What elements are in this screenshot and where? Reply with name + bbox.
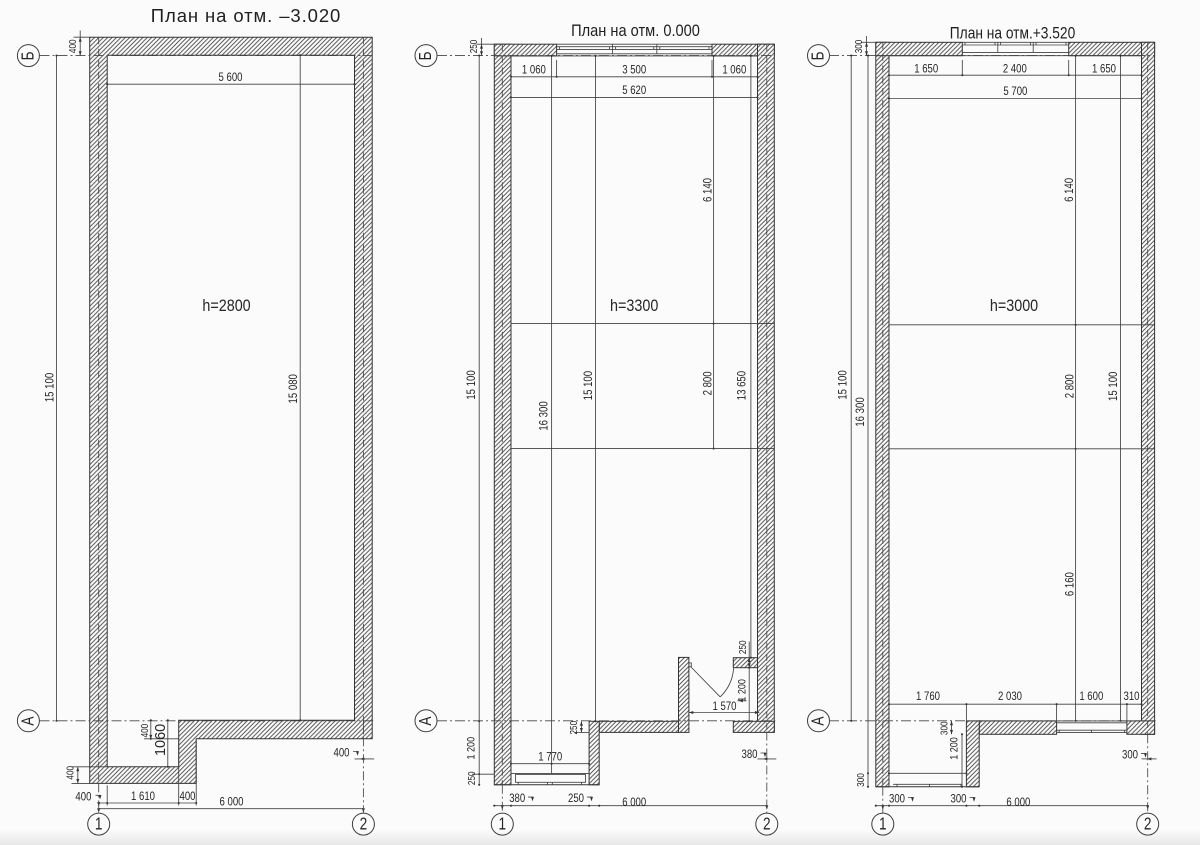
svg-text:Б: Б [19,51,38,60]
svg-text:300: 300 [951,793,967,806]
svg-text:16 300: 16 300 [854,397,867,426]
svg-text:400: 400 [139,724,150,738]
svg-text:380: 380 [742,748,758,761]
svg-text:1 770: 1 770 [538,751,562,764]
svg-text:5 700: 5 700 [1003,85,1027,98]
svg-text:16 300: 16 300 [537,401,550,430]
svg-text:6 160: 6 160 [1064,572,1077,596]
svg-text:1 200: 1 200 [737,679,749,702]
svg-text:1 650: 1 650 [1092,63,1116,76]
svg-text:15 100: 15 100 [836,370,849,399]
svg-text:План на отм.+3.520: План на отм.+3.520 [950,24,1075,43]
svg-text:6 140: 6 140 [1063,178,1076,202]
svg-text:15 100: 15 100 [43,373,56,402]
svg-text:А: А [809,716,828,726]
svg-text:250: 250 [568,721,579,735]
svg-text:1: 1 [95,815,103,834]
svg-text:250: 250 [737,641,748,655]
svg-text:300: 300 [855,773,866,787]
svg-text:6 140: 6 140 [701,178,714,202]
svg-text:300: 300 [1122,749,1138,762]
svg-text:2 030: 2 030 [998,690,1022,703]
svg-text:300: 300 [938,722,949,736]
svg-text:5 620: 5 620 [622,84,646,97]
svg-text:2 400: 2 400 [1003,63,1027,76]
svg-text:380: 380 [509,792,525,805]
svg-text:h=2800: h=2800 [202,297,251,315]
svg-text:1 060: 1 060 [722,63,746,76]
svg-text:1 600: 1 600 [1079,690,1103,703]
svg-text:3 500: 3 500 [622,63,646,76]
svg-text:1: 1 [499,815,507,834]
svg-text:План на отм. –3.020: План на отм. –3.020 [151,5,341,26]
svg-text:400: 400 [67,40,78,54]
svg-text:1 650: 1 650 [914,63,938,76]
svg-text:2: 2 [1144,815,1152,834]
svg-text:15 100: 15 100 [582,371,595,400]
svg-text:1 200: 1 200 [948,737,960,760]
svg-text:400: 400 [334,747,350,760]
svg-text:5 600: 5 600 [219,71,243,84]
svg-text:300: 300 [853,40,864,54]
svg-text:6 000: 6 000 [622,796,646,809]
svg-text:15 100: 15 100 [465,370,478,399]
svg-text:1: 1 [879,815,887,834]
svg-text:400: 400 [65,766,76,780]
svg-text:13 650: 13 650 [735,371,748,400]
svg-text:310: 310 [1124,690,1140,703]
svg-text:250: 250 [568,792,584,805]
svg-text:6 000: 6 000 [1006,796,1030,809]
svg-text:6 000: 6 000 [220,796,244,809]
svg-text:2 800: 2 800 [1064,374,1077,398]
svg-text:400: 400 [75,791,91,804]
svg-text:300: 300 [889,793,905,806]
svg-text:250: 250 [468,40,479,54]
svg-text:h=3300: h=3300 [610,297,659,315]
svg-text:2: 2 [763,815,771,834]
svg-text:2 800: 2 800 [701,371,714,395]
svg-text:План на отм. 0.000: План на отм. 0.000 [571,22,700,40]
svg-text:15 100: 15 100 [1107,372,1120,401]
svg-text:А: А [19,716,38,726]
svg-text:250: 250 [466,772,477,786]
svg-text:h=3000: h=3000 [990,297,1039,315]
svg-text:1 760: 1 760 [916,690,940,703]
svg-text:Б: Б [809,51,828,60]
svg-text:1060: 1060 [153,724,169,756]
svg-text:1 610: 1 610 [131,790,155,803]
svg-text:1 200: 1 200 [466,737,478,760]
svg-text:15 080: 15 080 [287,374,300,403]
svg-text:Б: Б [417,51,436,60]
svg-text:400: 400 [180,790,196,803]
svg-text:1 060: 1 060 [522,63,546,76]
svg-text:2: 2 [360,815,368,834]
svg-text:А: А [417,716,436,726]
svg-text:1 570: 1 570 [713,700,737,713]
